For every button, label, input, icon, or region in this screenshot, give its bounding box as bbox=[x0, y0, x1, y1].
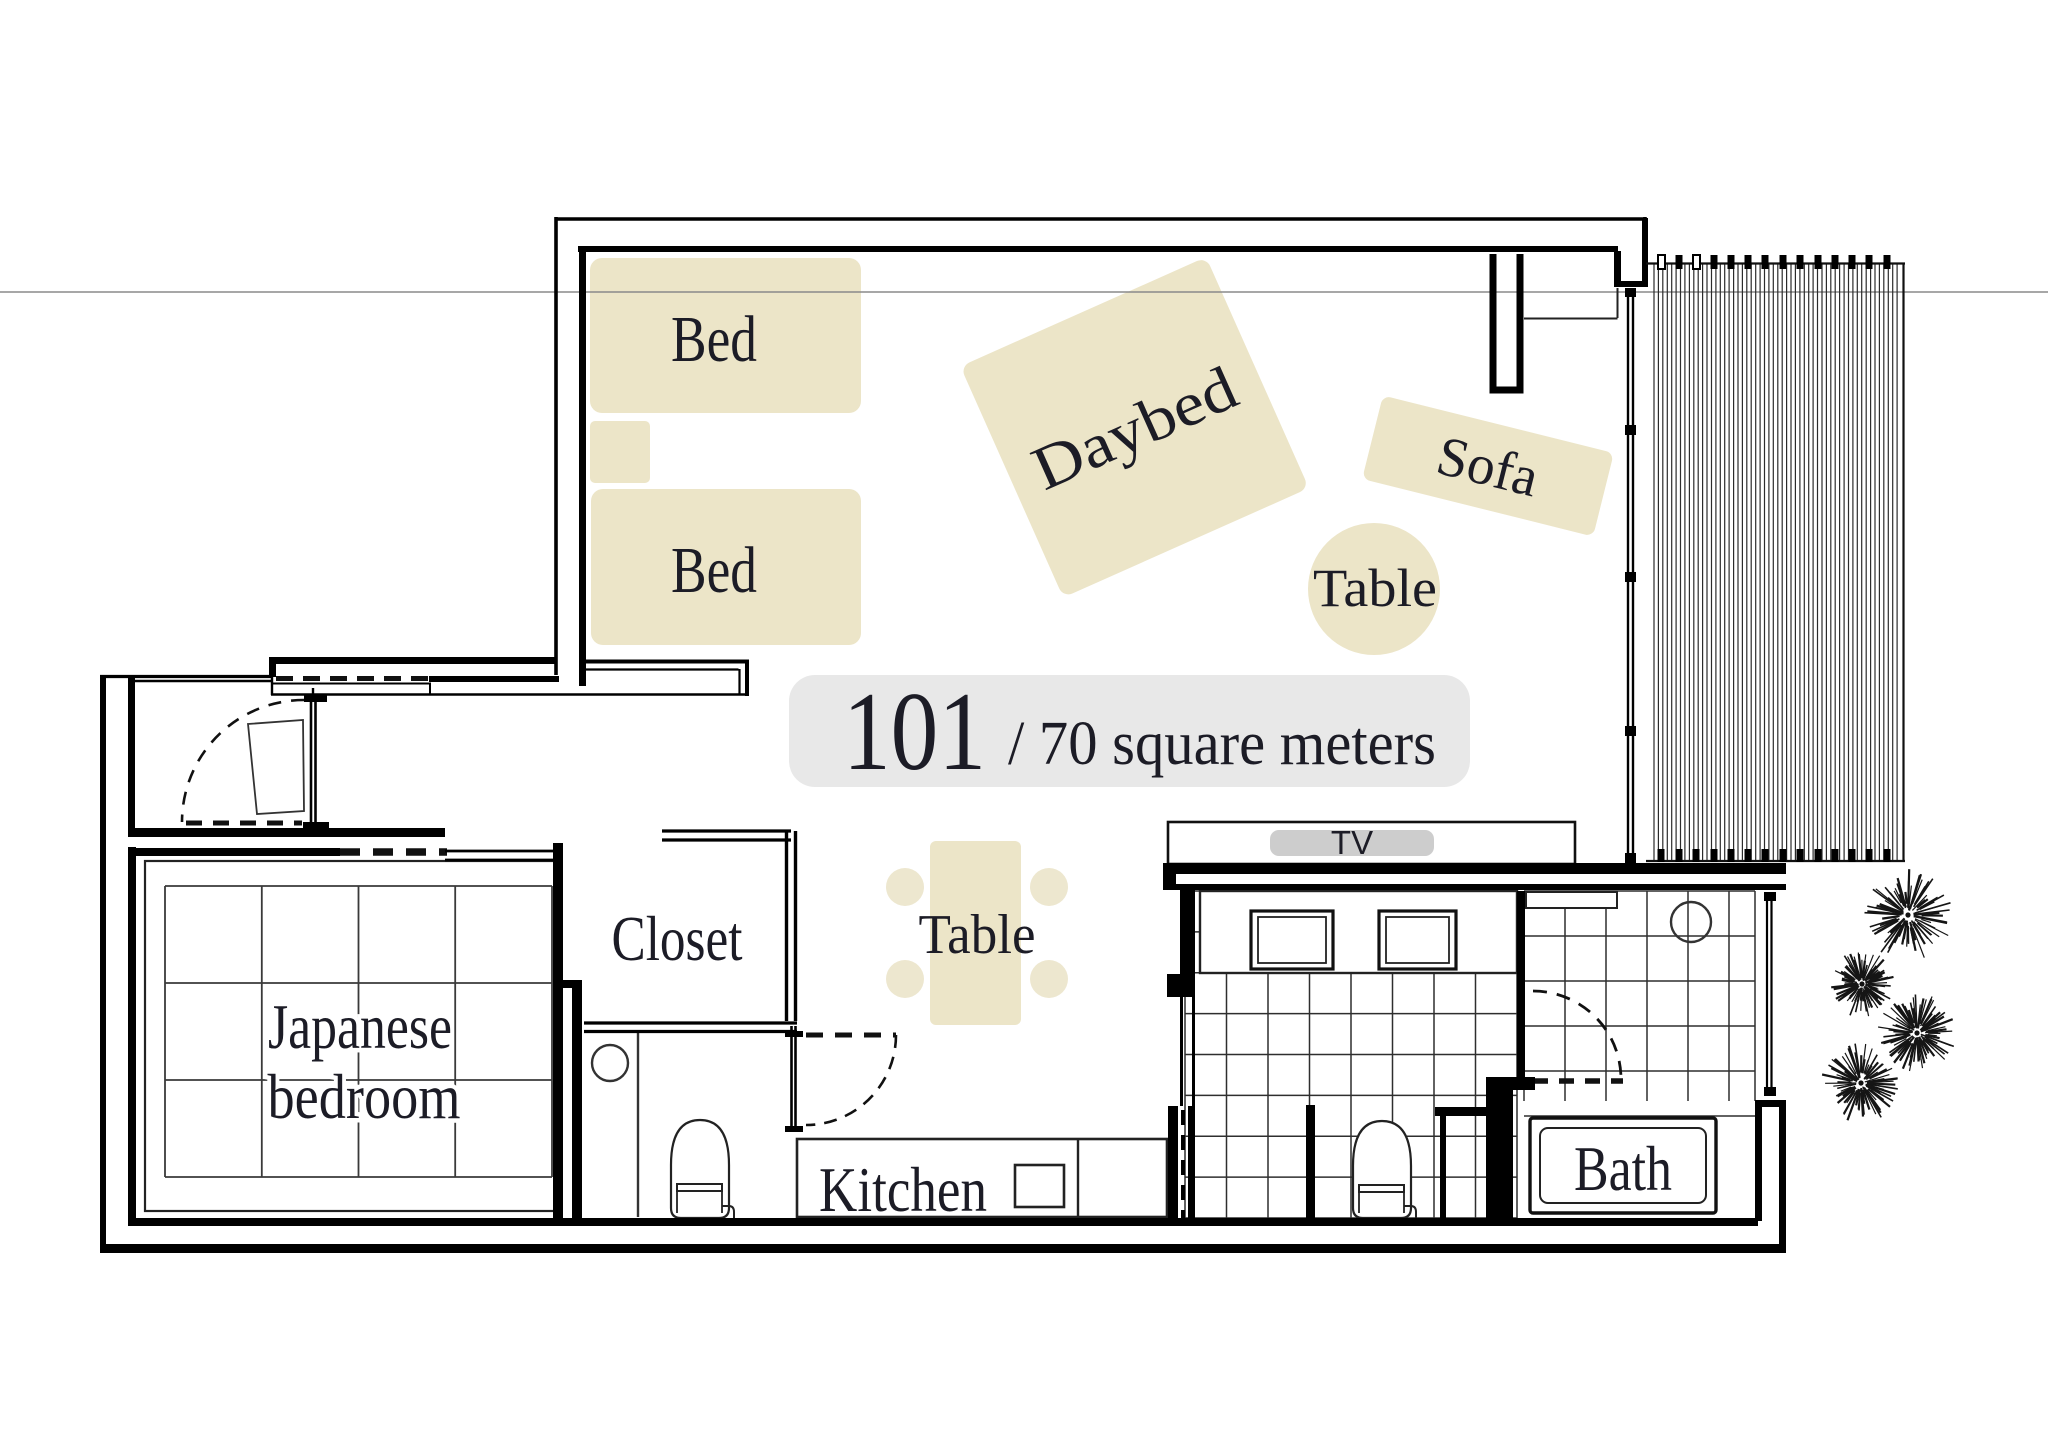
svg-text:Kitchen: Kitchen bbox=[819, 1154, 987, 1225]
svg-text:Closet: Closet bbox=[612, 903, 743, 974]
svg-text:Table: Table bbox=[919, 904, 1036, 966]
svg-text:TV: TV bbox=[1331, 824, 1373, 861]
svg-text:Bed: Bed bbox=[671, 303, 757, 376]
svg-text:Bath: Bath bbox=[1574, 1133, 1672, 1204]
svg-text:101: 101 bbox=[843, 670, 986, 794]
svg-text:Bed: Bed bbox=[671, 534, 757, 607]
svg-text:Japanese: Japanese bbox=[268, 991, 452, 1062]
svg-text:bedroom: bedroom bbox=[268, 1061, 461, 1132]
svg-text:/ 70 square meters: / 70 square meters bbox=[1008, 710, 1436, 778]
svg-text:Table: Table bbox=[1313, 558, 1437, 618]
